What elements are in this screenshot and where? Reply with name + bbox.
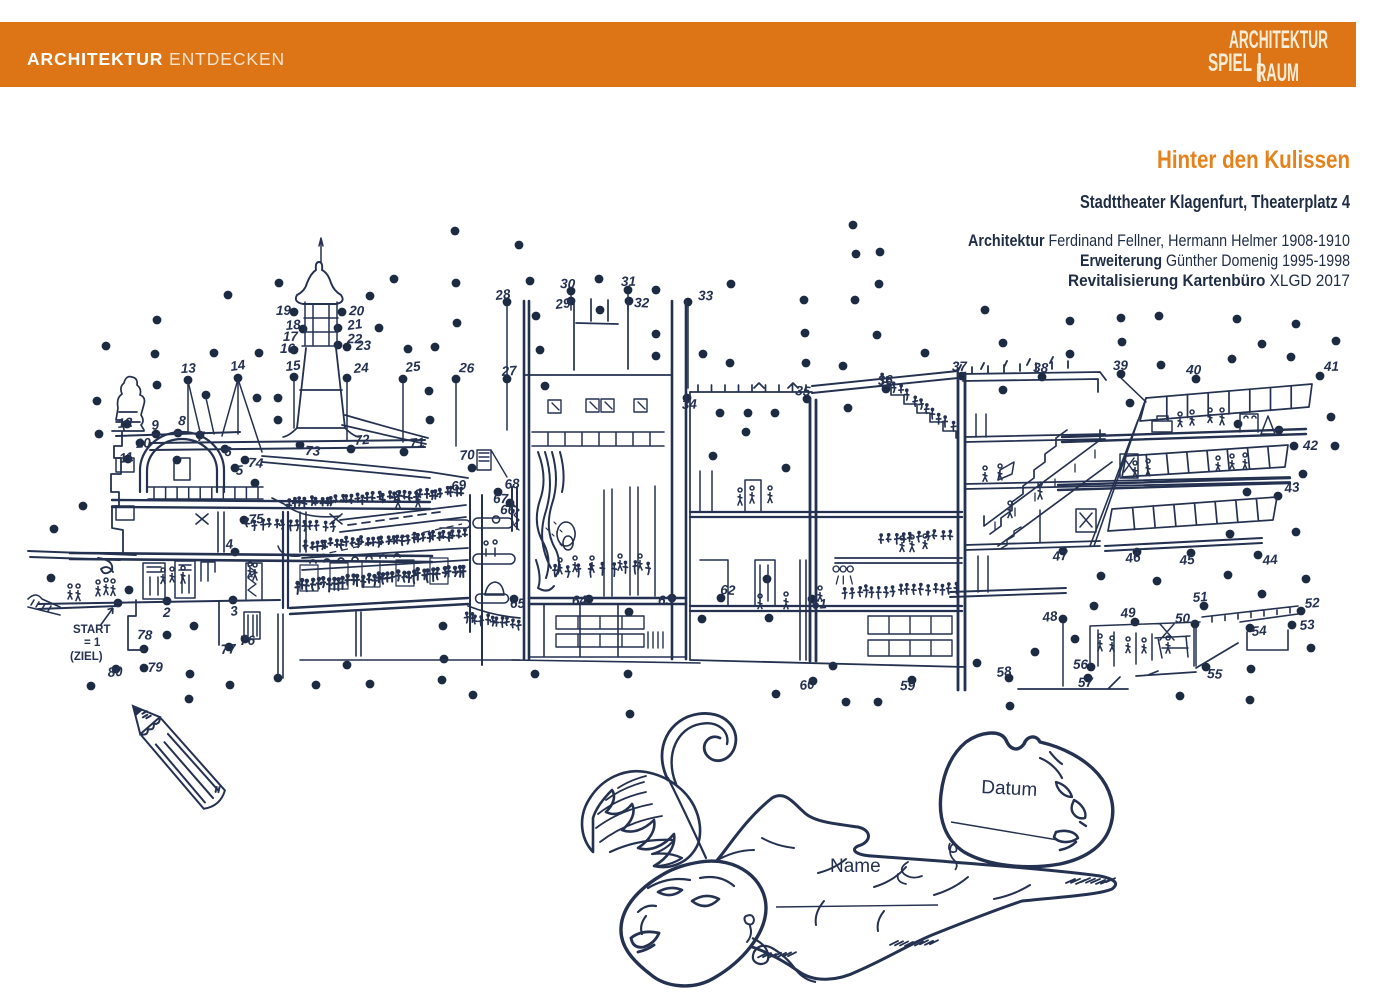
svg-text:19: 19: [276, 303, 292, 318]
svg-text:55: 55: [1207, 666, 1223, 682]
svg-text:53: 53: [1299, 617, 1316, 633]
svg-text:Architektur Ferdinand Fellner,: Architektur Ferdinand Fellner, Hermann H…: [968, 232, 1350, 250]
svg-text:= 1: = 1: [84, 637, 101, 649]
svg-text:2: 2: [162, 605, 171, 620]
svg-text:74: 74: [248, 455, 264, 471]
svg-text:58: 58: [996, 663, 1013, 680]
svg-text:56: 56: [1073, 657, 1089, 672]
svg-text:25: 25: [404, 358, 422, 375]
svg-text:40: 40: [1185, 362, 1202, 378]
svg-text:4: 4: [224, 536, 234, 552]
svg-text:14: 14: [229, 357, 246, 374]
svg-text:78: 78: [137, 627, 153, 643]
svg-text:39: 39: [1113, 358, 1129, 373]
svg-text:41: 41: [1323, 359, 1339, 374]
svg-text:Name: Name: [830, 856, 881, 877]
svg-text:Revitalisierung Kartenbüro XLG: Revitalisierung Kartenbüro XLGD 2017: [1068, 272, 1350, 290]
svg-text:46: 46: [1124, 549, 1142, 566]
svg-text:59: 59: [900, 678, 916, 693]
svg-text:23: 23: [355, 338, 372, 353]
svg-text:13: 13: [181, 360, 197, 376]
svg-text:47: 47: [1051, 548, 1070, 564]
svg-text:51: 51: [1192, 589, 1208, 605]
svg-text:80: 80: [107, 664, 124, 680]
svg-text:57: 57: [1078, 675, 1095, 690]
svg-text:START: START: [73, 624, 110, 636]
svg-text:35: 35: [795, 383, 812, 399]
svg-text:44: 44: [1261, 552, 1279, 568]
svg-text:5: 5: [235, 462, 244, 478]
svg-text:Datum: Datum: [981, 777, 1038, 801]
svg-text:8: 8: [178, 413, 187, 428]
svg-text:70: 70: [459, 447, 476, 463]
svg-text:6: 6: [224, 444, 232, 459]
svg-text:49: 49: [1119, 605, 1137, 621]
svg-text:9: 9: [151, 417, 161, 433]
svg-text:Erweiterung Günther Domenig 19: Erweiterung Günther Domenig 1995-1998: [1080, 252, 1350, 270]
svg-text:54: 54: [1251, 623, 1268, 639]
svg-text:24: 24: [352, 360, 370, 376]
svg-text:3: 3: [229, 603, 239, 619]
svg-text:67: 67: [493, 491, 510, 506]
svg-text:18: 18: [285, 317, 302, 333]
svg-text:42: 42: [1302, 438, 1319, 453]
svg-text:73: 73: [305, 443, 321, 459]
svg-text:Hinter den Kulissen: Hinter den Kulissen: [1157, 146, 1350, 174]
svg-text:52: 52: [1304, 595, 1321, 611]
svg-text:48: 48: [1041, 608, 1059, 625]
svg-text:50: 50: [1175, 611, 1191, 626]
svg-text:27: 27: [500, 363, 519, 379]
svg-text:45: 45: [1178, 552, 1196, 568]
svg-text:15: 15: [285, 357, 302, 374]
svg-text:Stadttheater Klagenfurt, Theat: Stadttheater Klagenfurt, Theaterplatz 4: [1080, 192, 1350, 212]
svg-text:60: 60: [799, 676, 816, 693]
svg-text:79: 79: [148, 659, 164, 675]
svg-text:77: 77: [220, 641, 237, 657]
svg-text:26: 26: [458, 360, 475, 376]
svg-text:(ZIEL): (ZIEL): [70, 651, 103, 663]
